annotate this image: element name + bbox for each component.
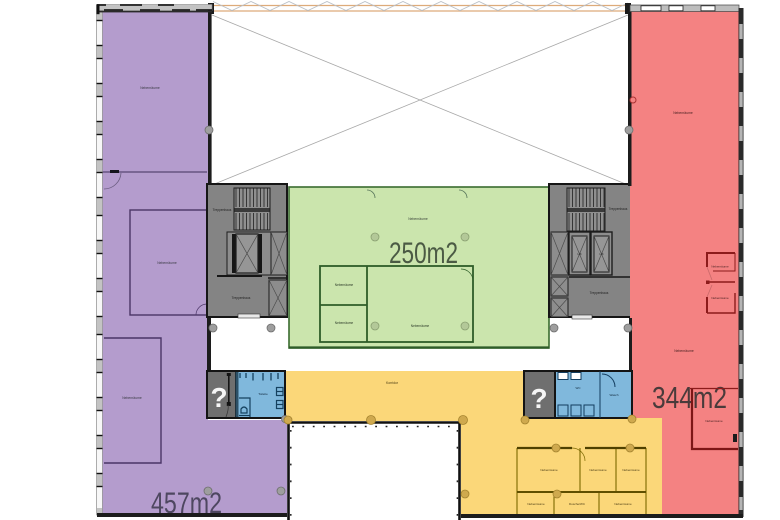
svg-text:Nebenräume: Nebenräume bbox=[122, 396, 142, 400]
svg-text:Nebenräume: Nebenräume bbox=[408, 217, 428, 221]
svg-text:Lift: Lift bbox=[577, 252, 581, 256]
svg-text:Nebenräume: Nebenräume bbox=[589, 468, 607, 472]
svg-text:Nebenräume: Nebenräume bbox=[622, 468, 640, 472]
svg-text:Nebenräume: Nebenräume bbox=[411, 324, 430, 328]
svg-text:Treppenhaus: Treppenhaus bbox=[590, 291, 609, 295]
svg-text:Wasch: Wasch bbox=[609, 393, 618, 397]
svg-text:Treppenhaus: Treppenhaus bbox=[232, 296, 251, 300]
svg-text:Treppenhaus: Treppenhaus bbox=[609, 207, 628, 211]
svg-text:Nebenräume: Nebenräume bbox=[705, 419, 723, 423]
svg-text:Korridor: Korridor bbox=[386, 381, 399, 385]
svg-text:Nebenräume: Nebenräume bbox=[157, 261, 177, 265]
svg-text:?: ? bbox=[530, 383, 547, 414]
svg-text:Nebenräume: Nebenräume bbox=[335, 283, 354, 287]
svg-text:344m2: 344m2 bbox=[652, 380, 727, 415]
svg-text:Nebenräume: Nebenräume bbox=[674, 349, 694, 353]
svg-text:250m2: 250m2 bbox=[389, 237, 458, 270]
svg-text:Nebenräume: Nebenräume bbox=[140, 86, 160, 90]
svg-text:?: ? bbox=[210, 382, 227, 413]
svg-text:Lift: Lift bbox=[599, 252, 603, 256]
svg-text:WC: WC bbox=[576, 386, 582, 390]
svg-text:Nebenräume: Nebenräume bbox=[335, 321, 354, 325]
svg-text:Nebenräume: Nebenräume bbox=[673, 111, 693, 115]
svg-text:Treppenhaus: Treppenhaus bbox=[213, 208, 232, 212]
svg-text:Nebenräume: Nebenräume bbox=[711, 265, 729, 269]
svg-text:Nebenräume: Nebenräume bbox=[711, 296, 729, 300]
svg-text:Dusche/WC: Dusche/WC bbox=[569, 502, 586, 506]
svg-text:Nebenräume: Nebenräume bbox=[527, 502, 545, 506]
svg-text:Nebenräume: Nebenräume bbox=[540, 468, 558, 472]
svg-text:Nebenräume: Nebenräume bbox=[614, 502, 632, 506]
svg-text:Toilette: Toilette bbox=[258, 392, 268, 396]
